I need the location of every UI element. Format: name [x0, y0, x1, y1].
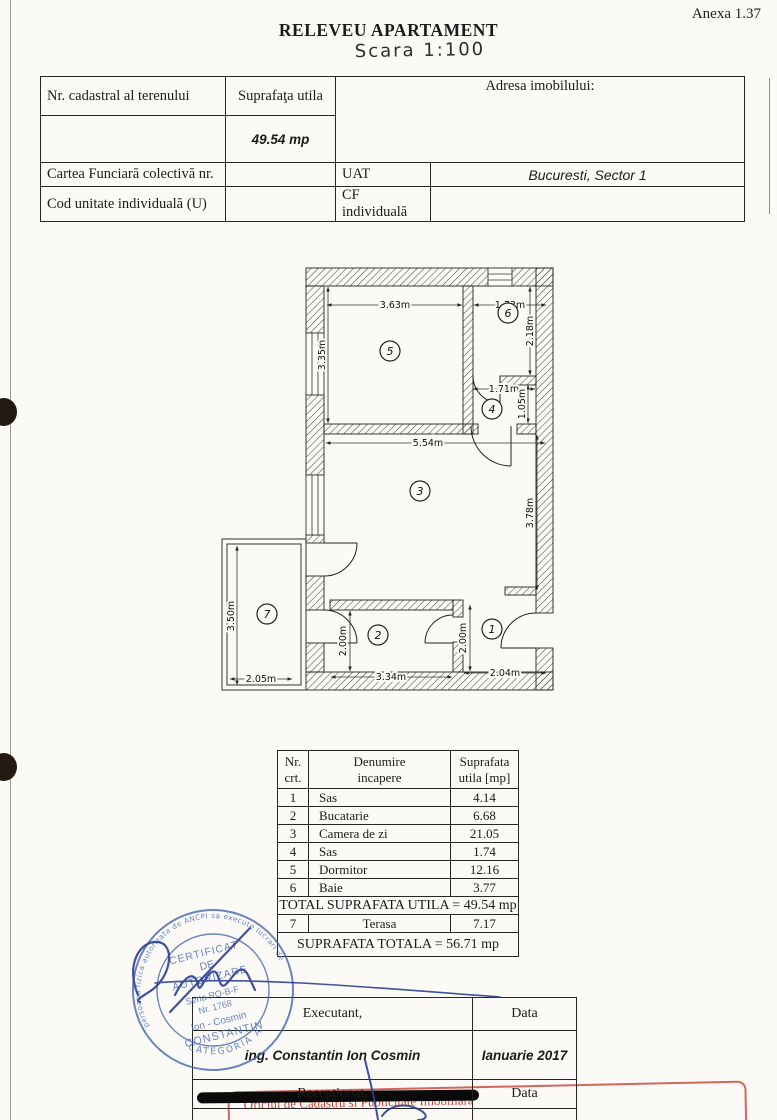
hole-punch [0, 753, 17, 781]
cf-individuala-label: CF individuală [336, 187, 431, 222]
info-empty-cell [226, 187, 336, 222]
cadastral-info-table: Nr. cadastral al terenului Suprafaţa uti… [40, 76, 745, 222]
svg-text:1: 1 [489, 623, 496, 636]
dimension-label: 5.54m [413, 438, 443, 449]
svg-text:3: 3 [417, 485, 424, 498]
uat-label: UAT [336, 163, 431, 187]
info-col1-header: Nr. cadastral al terenului [41, 77, 226, 116]
paper-edge-right [769, 78, 770, 214]
svg-text:4: 4 [489, 403, 496, 416]
dimension-label: 2.00m [458, 623, 469, 653]
info-col2-header: Suprafaţa utila [226, 77, 336, 116]
dimension-label: 2.04m [490, 668, 520, 679]
dimension-label: 3.63m [380, 300, 410, 311]
info-empty-cell [41, 116, 226, 163]
cod-unitate-label: Cod unitate individuală (U) [41, 187, 226, 222]
handwritten-signature [120, 920, 600, 1120]
svg-text:5: 5 [387, 345, 394, 358]
floor-plan: 3.63m 1.73m 3.35m 2.18m 1.71m 1.05m 5.54… [215, 258, 565, 703]
room-number-circle: 1 2 3 4 5 6 7 [257, 303, 518, 645]
svg-text:2: 2 [375, 629, 382, 642]
table-row: 4 Sas 1.74 [278, 843, 519, 861]
dimension-label: 3.78m [525, 498, 536, 528]
cf-individuala-value [431, 187, 745, 222]
suprafata-value: 49.54 mp [226, 116, 336, 163]
total-utila-row: TOTAL SUPRAFATA UTILA = 49.54 mp [278, 897, 519, 915]
rooms-header-nr: Nr.crt. [278, 751, 309, 789]
table-row: 6 Baie 3.77 [278, 879, 519, 897]
svg-text:6: 6 [505, 307, 512, 320]
rooms-header-denumire: Denumireincapere [309, 751, 451, 789]
hole-punch [0, 398, 17, 426]
scale-label: Scara 1:100 [340, 39, 500, 63]
info-empty-cell [226, 163, 336, 187]
dimension-label: 3.35m [317, 340, 328, 370]
info-col3-header: Adresa imobilului: [336, 77, 745, 163]
paper-edge-left [10, 0, 11, 1120]
rooms-header-suprafata: Suprafatautila [mp] [451, 751, 519, 789]
svg-text:7: 7 [264, 608, 271, 621]
uat-value: Bucuresti, Sector 1 [431, 163, 745, 187]
scanned-document-page: Anexa 1.37 RELEVEU APARTAMENT Scara 1:10… [0, 0, 777, 1120]
document-title: RELEVEU APARTAMENT [0, 20, 777, 41]
dimension-label: 2.18m [525, 316, 536, 346]
dimension-label: 3.34m [376, 672, 406, 683]
dimension-label: 2.05m [246, 674, 276, 685]
cartea-funciara-label: Cartea Funciară colectivă nr. [41, 163, 226, 187]
dimension-label: 1.71m [489, 384, 519, 395]
table-row: 2 Bucatarie 6.68 [278, 807, 519, 825]
table-row: 3 Camera de zi 21.05 [278, 825, 519, 843]
table-row: 5 Dormitor 12.16 [278, 861, 519, 879]
dimension-label: 3.50m [226, 601, 237, 631]
dimension-label: 2.00m [338, 626, 349, 656]
dimension-label: 1.05m [517, 389, 528, 419]
table-row: 1 Sas 4.14 [278, 789, 519, 807]
